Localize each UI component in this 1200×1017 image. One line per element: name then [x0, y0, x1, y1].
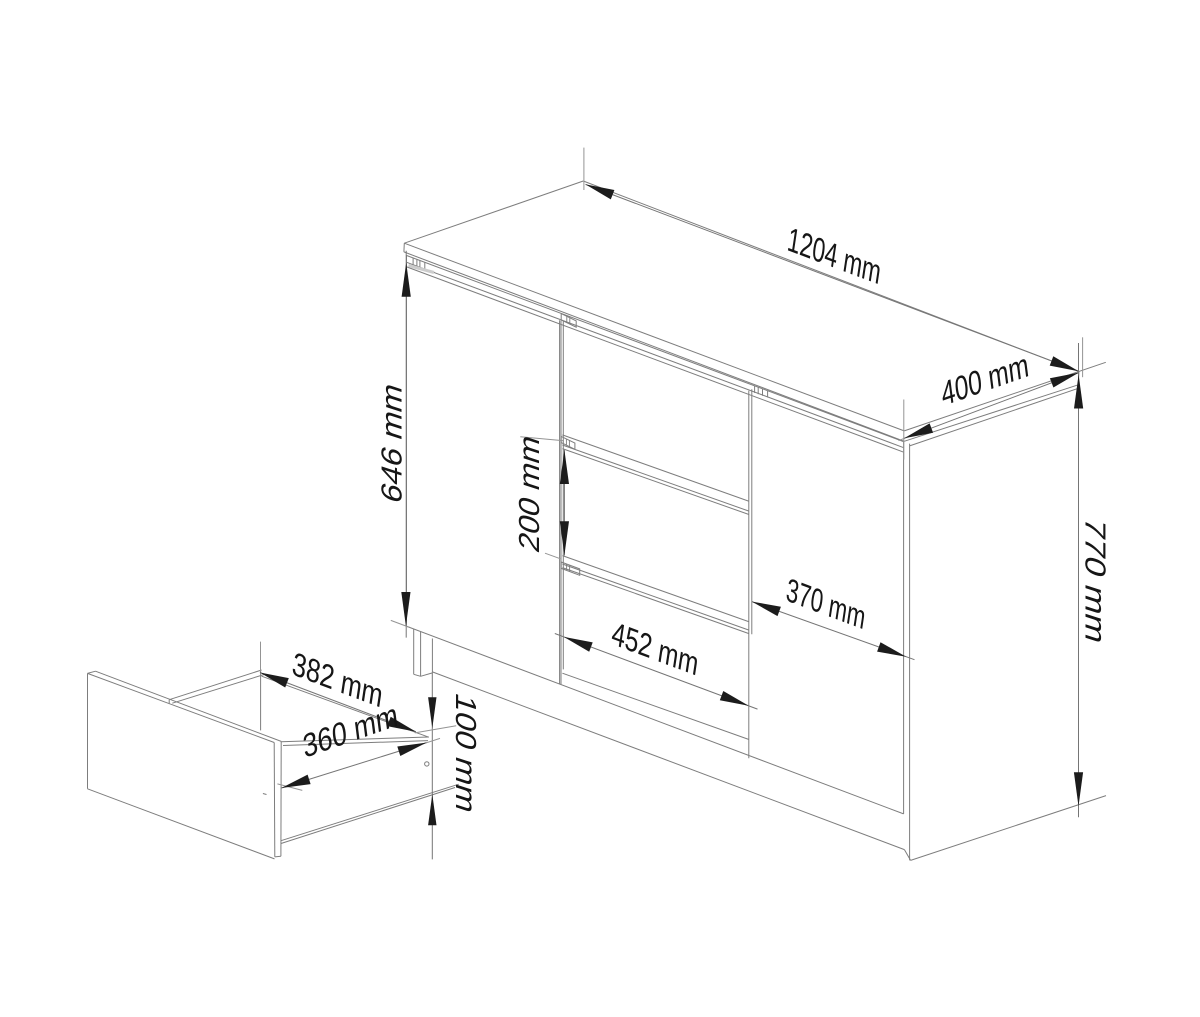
svg-text:646 mm: 646 mm — [376, 379, 408, 507]
svg-text:770 mm: 770 mm — [1079, 514, 1111, 648]
svg-text:200 mm: 200 mm — [514, 431, 546, 556]
svg-text:100 mm: 100 mm — [449, 689, 481, 817]
svg-text:1204 mm: 1204 mm — [785, 221, 883, 293]
svg-text:370 mm: 370 mm — [784, 571, 868, 636]
svg-text:452 mm: 452 mm — [609, 615, 701, 683]
